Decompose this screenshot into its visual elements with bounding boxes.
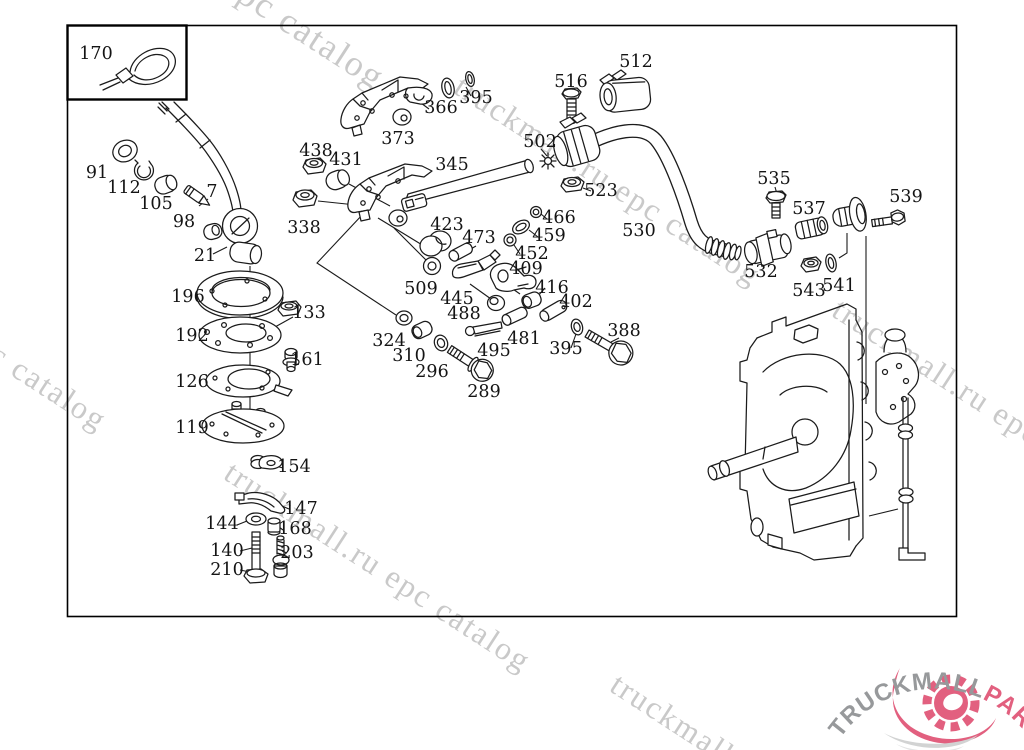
part-324-washer: [396, 311, 412, 325]
part-466-ring: [531, 207, 542, 218]
part-105-bushing: [153, 173, 179, 196]
part-523-nut: [561, 177, 584, 192]
part-label-543: 543: [792, 281, 825, 301]
part-495-cotter-pin: [466, 322, 503, 336]
part-431-bushing: [324, 167, 352, 192]
part-label-170: 170: [79, 44, 112, 64]
watermark-text: truckmall.ru epc catalog: [218, 454, 538, 679]
part-label-532: 532: [744, 262, 777, 282]
watermark-text: truckmall.ru epc catalog: [0, 213, 114, 438]
part-label-537: 537: [792, 199, 825, 219]
watermark-text: truckmall.ru epc catalog: [826, 291, 1024, 516]
part-label-423: 423: [430, 215, 463, 235]
part-label-488: 488: [447, 304, 480, 324]
part-label-502: 502: [523, 132, 556, 152]
part-label-7: 7: [206, 182, 217, 202]
part-label-409: 409: [509, 259, 542, 279]
part-label-523: 523: [584, 181, 617, 201]
part-label-161: 161: [290, 350, 323, 370]
part-label-147: 147: [284, 499, 317, 519]
watermark-layer: epc catalog truckmall.ru epc catalog tru…: [0, 0, 1024, 750]
part-label-192: 192: [175, 326, 208, 346]
part-112-snap-ring: [134, 160, 153, 180]
part-label-541: 541: [822, 276, 855, 296]
part-label-91: 91: [86, 163, 108, 183]
part-338-nut: [293, 190, 317, 207]
part-310-bushing: [410, 319, 434, 340]
part-label-296: 296: [415, 362, 448, 382]
part-label-196: 196: [171, 287, 204, 307]
part-label-438: 438: [299, 141, 332, 161]
part-140-210-bolt: [244, 532, 268, 583]
part-543-nut: [801, 257, 821, 272]
part-488-cup: [488, 296, 505, 311]
parts-diagram-page: epc catalog truckmall.ru epc catalog tru…: [0, 0, 1024, 750]
part-label-289: 289: [467, 382, 500, 402]
part-label-338: 338: [287, 218, 320, 238]
part-label-431: 431: [329, 150, 362, 170]
part-label-105: 105: [139, 194, 172, 214]
part-502-clip: [540, 153, 556, 169]
part-395-ring-a: [440, 77, 456, 99]
part-126-plate: [206, 365, 292, 397]
part-label-395a: 395: [459, 88, 492, 108]
part-label-495: 495: [477, 341, 510, 361]
part-lower-bracket: [348, 164, 432, 226]
part-label-388: 388: [607, 321, 640, 341]
part-label-395b: 395: [549, 339, 582, 359]
part-541-ring: [824, 253, 838, 273]
part-label-133: 133: [292, 303, 325, 323]
part-481-pin: [501, 306, 529, 327]
part-196-retainer-ring: [197, 271, 283, 318]
part-label-530: 530: [622, 221, 655, 241]
part-label-539: 539: [889, 187, 922, 207]
part-label-119: 119: [175, 418, 208, 438]
part-label-373: 373: [381, 129, 414, 149]
part-512-clamp: [598, 70, 651, 114]
part-535-bolt: [766, 191, 786, 218]
part-label-516: 516: [554, 72, 587, 92]
part-label-466: 466: [542, 208, 575, 228]
part-label-140: 140: [210, 541, 243, 561]
watermark-text: epc catalog: [216, 0, 393, 97]
part-label-168: 168: [278, 519, 311, 539]
part-label-459: 459: [532, 226, 565, 246]
part-192-flange-plate: [199, 317, 281, 353]
part-119-base-plate: [202, 402, 284, 444]
part-label-481: 481: [507, 329, 540, 349]
part-98-bushing: [202, 222, 223, 241]
part-label-112: 112: [107, 178, 140, 198]
part-label-535: 535: [757, 169, 790, 189]
part-395-ring-c: [570, 318, 585, 336]
part-label-126: 126: [175, 372, 208, 392]
part-144-washer: [246, 513, 266, 525]
part-459-ring: [510, 217, 532, 236]
part-label-21: 21: [194, 246, 216, 266]
part-label-210: 210: [210, 560, 243, 580]
part-452-ring: [504, 234, 516, 246]
part-label-345: 345: [435, 155, 468, 175]
part-296-ring: [432, 333, 450, 352]
part-label-366: 366: [424, 98, 457, 118]
part-label-402: 402: [559, 292, 592, 312]
part-label-473: 473: [462, 228, 495, 248]
part-label-203: 203: [280, 543, 313, 563]
gearbox-assembly: [707, 304, 925, 560]
part-label-144: 144: [205, 514, 238, 534]
part-label-509: 509: [404, 279, 437, 299]
part-509-washer: [424, 258, 441, 275]
part-label-98: 98: [173, 212, 195, 232]
part-label-512: 512: [619, 52, 652, 72]
part-537-ribbed-bushing: [794, 216, 829, 240]
part-label-154: 154: [277, 457, 310, 477]
